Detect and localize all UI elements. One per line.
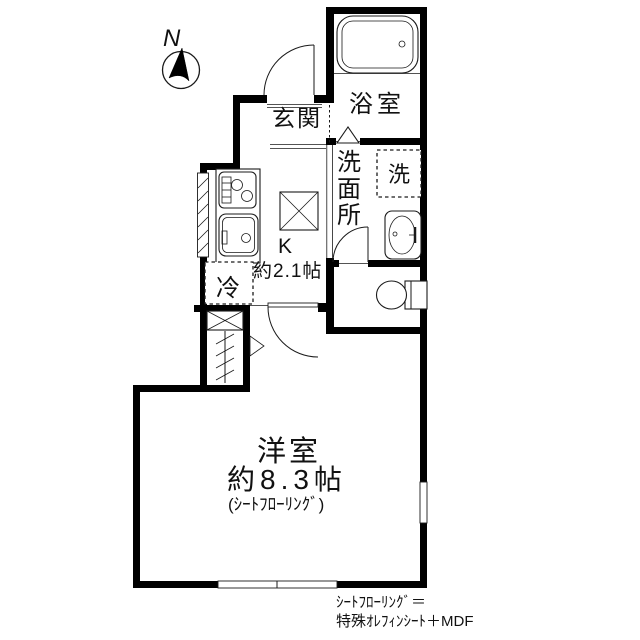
living-room-floor-note: (ｼｰﾄﾌﾛｰﾘﾝｸﾞ) xyxy=(228,495,324,514)
footer-line1: ｼｰﾄﾌﾛｰﾘﾝｸﾞ＝ xyxy=(336,594,426,611)
closet-door-icon xyxy=(250,336,264,356)
compass: N xyxy=(163,25,200,89)
living-room-size-label: 約8.3帖 xyxy=(227,464,347,495)
washroom-label: 洗 面 所 xyxy=(337,149,361,229)
kitchen-size-label: 約2.1帖 xyxy=(253,260,322,282)
stove-icon xyxy=(219,172,256,208)
footer-note: ｼｰﾄﾌﾛｰﾘﾝｸﾞ＝ 特殊ｵﾚﾌｨﾝｼｰﾄ＋MDF xyxy=(336,594,474,630)
bottom-window-icon xyxy=(218,581,337,588)
bath-door-icon xyxy=(336,127,360,143)
washbasin-icon xyxy=(385,211,421,259)
kitchen-xbox-icon xyxy=(280,192,318,230)
washroom-door-icon xyxy=(333,227,368,264)
closet-icon xyxy=(207,311,243,383)
compass-north-label: N xyxy=(163,25,181,52)
svg-text:洗: 洗 xyxy=(337,149,361,176)
entrance-door-icon xyxy=(264,45,322,108)
svg-text:所: 所 xyxy=(337,202,361,229)
kitchen-washroom-opening xyxy=(327,105,333,258)
kitchen-counter-icon xyxy=(216,169,260,263)
sink-icon xyxy=(219,214,258,256)
svg-text:面: 面 xyxy=(337,176,361,203)
kitchen-label: K xyxy=(278,235,292,258)
footer-line2: 特殊ｵﾚﾌｨﾝｼｰﾄ＋MDF xyxy=(336,613,474,630)
toilet-icon xyxy=(377,281,428,309)
fridge-label: 冷 xyxy=(216,275,240,302)
laundry-label: 洗 xyxy=(388,162,410,187)
genkan-step-line xyxy=(270,145,326,149)
right-window-icon xyxy=(420,482,427,523)
floorplan-image: N 玄関 浴室 洗 面 所 洗 K 約2.1帖 冷 洋室 約8.3帖 (ｼｰﾄﾌ… xyxy=(0,0,640,640)
bathtub-icon xyxy=(334,16,420,74)
bath-label: 浴室 xyxy=(349,91,405,118)
kitchen-window-icon xyxy=(198,173,209,257)
genkan-label: 玄関 xyxy=(272,105,322,131)
